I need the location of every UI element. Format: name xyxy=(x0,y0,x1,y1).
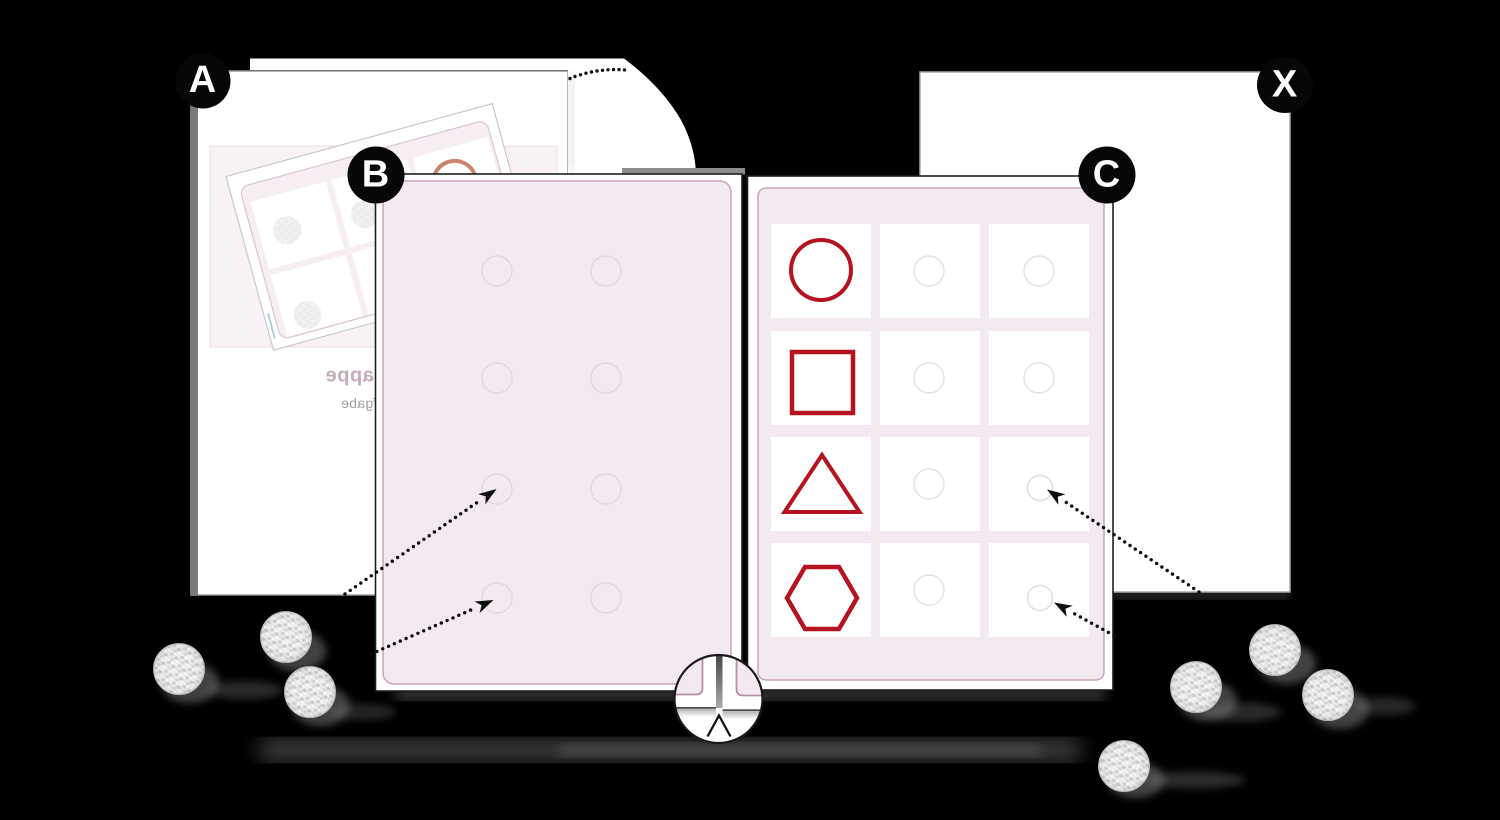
svg-text:C: C xyxy=(1093,154,1120,196)
svg-text:B: B xyxy=(362,154,389,196)
svg-text:X: X xyxy=(1272,64,1298,106)
svg-text:A: A xyxy=(189,59,216,101)
